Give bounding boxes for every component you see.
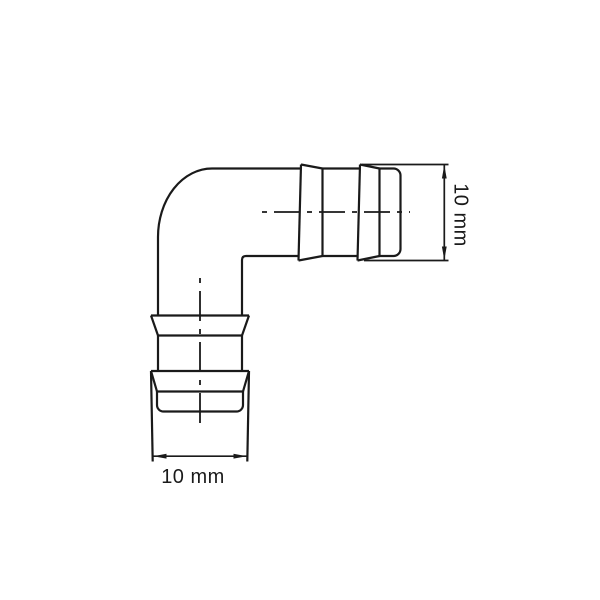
- bottom-barb1-taper-right: [242, 316, 249, 336]
- bottom-skirt-left-extension: [151, 371, 153, 462]
- right-barb1-taper-bottom: [299, 256, 323, 261]
- dimension-label-right: 10 mm: [450, 183, 472, 247]
- elbow-inner-profile: [242, 256, 299, 316]
- arrow-left-icon: [153, 454, 166, 459]
- dimension-bottom: 10 mm: [153, 454, 247, 488]
- right-barb1-taper-top: [301, 165, 323, 169]
- arrow-up-icon: [442, 165, 447, 179]
- elbow-hose-barb-drawing: 10 mm 10 mm: [0, 0, 600, 600]
- elbow-outer-profile: [158, 169, 301, 316]
- dimension-label-bottom: 10 mm: [161, 466, 225, 488]
- bottom-barb1-taper-left: [151, 316, 158, 336]
- arrow-right-icon: [234, 454, 247, 459]
- technical-drawing-page: 10 mm 10 mm: [0, 0, 600, 600]
- arrow-down-icon: [442, 247, 447, 261]
- right-barb2-ridge: [358, 165, 361, 261]
- bottom-skirt-right-extension: [247, 371, 249, 462]
